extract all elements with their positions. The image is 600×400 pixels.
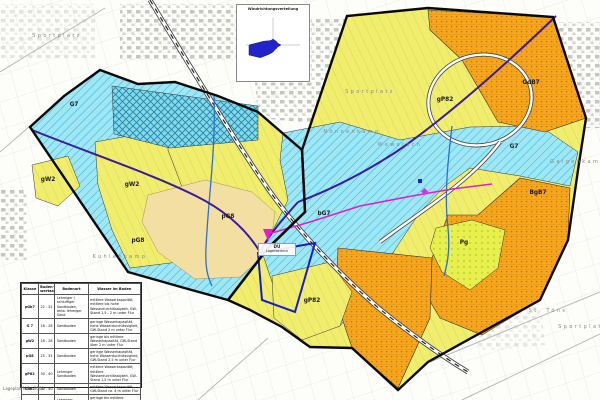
legend-row: gW2 18 - 28 Sandboden geringe bis mittle… <box>22 334 141 349</box>
soil-legend-table: Klasse Boden-wertzahl Bodenart Wasser im… <box>20 282 142 388</box>
legend-wz: 22 - 32 <box>38 295 55 318</box>
legend-wasser: mittlere Wasserkapazität, mittlere bis h… <box>88 295 140 318</box>
zone-label-g7-right: G7 <box>510 144 519 150</box>
legend-code: gP82 <box>22 364 39 383</box>
zone-label-gp82-top: gP82 <box>437 97 453 103</box>
windrose-inset: Windrichtungsverteilung <box>236 4 310 82</box>
zone-label-pg: Pg <box>460 240 468 246</box>
legend-row: gP82 30 - 40 Lehmiger Sandboden mittlere… <box>22 364 141 383</box>
legend-bodenart: Sandboden <box>55 349 88 364</box>
legend-wz: 25 - 35 <box>38 349 55 364</box>
zone-label-pg8-b: pG8 <box>222 214 235 220</box>
scale-note: Lageplan M 1 : 5000 <box>3 386 44 391</box>
zone-label-gw2-west: gW2 <box>41 177 56 183</box>
legend-row: G 7 18 - 28 Sandboden geringe Wasserkapa… <box>22 318 141 333</box>
legend-wasser: mittlere Wasserkapazität, mittlere Wasse… <box>88 364 140 383</box>
place-label-st-toens: St. Töns <box>529 308 568 314</box>
soil-map-canvas: G7 gW2 gW2 pG8 pG8 bG7 G7 gP82 GdB7 BgB7… <box>0 0 600 400</box>
zone-label-gdb7: GdB7 <box>522 80 539 86</box>
legend-bodenart: Lehmiger Sandboden <box>55 364 88 383</box>
place-label-sportplatz-nw: Sportplatz <box>32 33 82 39</box>
zone-label-g7-left: G7 <box>70 102 79 108</box>
blue-square-marker <box>418 179 422 183</box>
legend-code: pG8 <box>22 349 39 364</box>
place-label-galgenkamp: Galgenkamp <box>550 159 600 165</box>
legend-wz: 18 - 28 <box>38 318 55 333</box>
legend-wz: 30 - 40 <box>38 364 55 383</box>
place-label-noennenkamp: Nönnenkamp <box>323 129 380 135</box>
zone-label-bgb7: BgB7 <box>529 190 546 196</box>
place-label-wewersch: Wewersch <box>378 142 423 148</box>
legend-code: G 7 <box>22 318 39 333</box>
legend-wasser: geringe bis mittlere Wasserkapazität, GW… <box>88 334 140 349</box>
legend-bodenart: Sandboden <box>55 383 88 394</box>
zone-label-pg8-a: pG8 <box>132 238 145 244</box>
legend-bodenart: Sandboden <box>55 318 88 333</box>
legend-header-wertzahl: Boden-wertzahl <box>38 284 55 295</box>
legend-row: pGb7 22 - 32 Lehmiger / schluffiger Sand… <box>22 295 141 318</box>
legend-wasser: geringe Wasserkapazität, hohe Wasserdurc… <box>88 318 140 333</box>
legend-header-klasse: Klasse <box>22 284 39 295</box>
du-site-line2: Lagerbereich <box>259 250 295 254</box>
legend-row: BgB7 35 - 45 Lehmiger Sandboden geringe … <box>22 394 141 400</box>
legend-header-row: Klasse Boden-wertzahl Bodenart Wasser im… <box>22 284 141 295</box>
legend-wz: 35 - 45 <box>38 394 55 400</box>
legend-wasser: geringe Wasserkapazität, hohe Wasserdurc… <box>88 349 140 364</box>
legend-bodenart: Sandboden <box>55 334 88 349</box>
zone-label-gp82-bottom: gP82 <box>304 298 320 304</box>
legend-header-wasser: Wasser im Boden <box>88 284 140 295</box>
place-label-sportplatz-mid: Sportplatz <box>345 89 395 95</box>
legend-wasser: mittlere Wasserkapazität, GW-Stand ca. 4… <box>88 383 140 394</box>
legend-code: gW2 <box>22 334 39 349</box>
place-label-kuhlenkamp: Kuhlenkamp <box>93 254 148 260</box>
legend-wasser: geringe bis mittlere Wasserkapazität, GW… <box>88 394 140 400</box>
legend-code: pGb7 <box>22 295 39 318</box>
place-label-sportplatz-se: Sportplatz <box>558 324 600 330</box>
zone-label-bg7-mid: bG7 <box>318 211 331 217</box>
legend-bodenart: Lehmiger / schluffiger Sandboden, teilw.… <box>55 295 88 318</box>
legend-header-bodenart: Bodenart <box>55 284 88 295</box>
windrose-diagram <box>237 11 309 77</box>
legend-row: pG8 25 - 35 Sandboden geringe Wasserkapa… <box>22 349 141 364</box>
zone-label-gw2-mid: gW2 <box>125 182 140 188</box>
legend-code: BgB7 <box>22 394 39 400</box>
legend-wz: 18 - 28 <box>38 334 55 349</box>
windrose-frequency-polygon <box>249 39 281 58</box>
du-site-label: DU Lagerbereich <box>258 243 296 256</box>
legend-bodenart: Lehmiger Sandboden <box>55 394 88 400</box>
